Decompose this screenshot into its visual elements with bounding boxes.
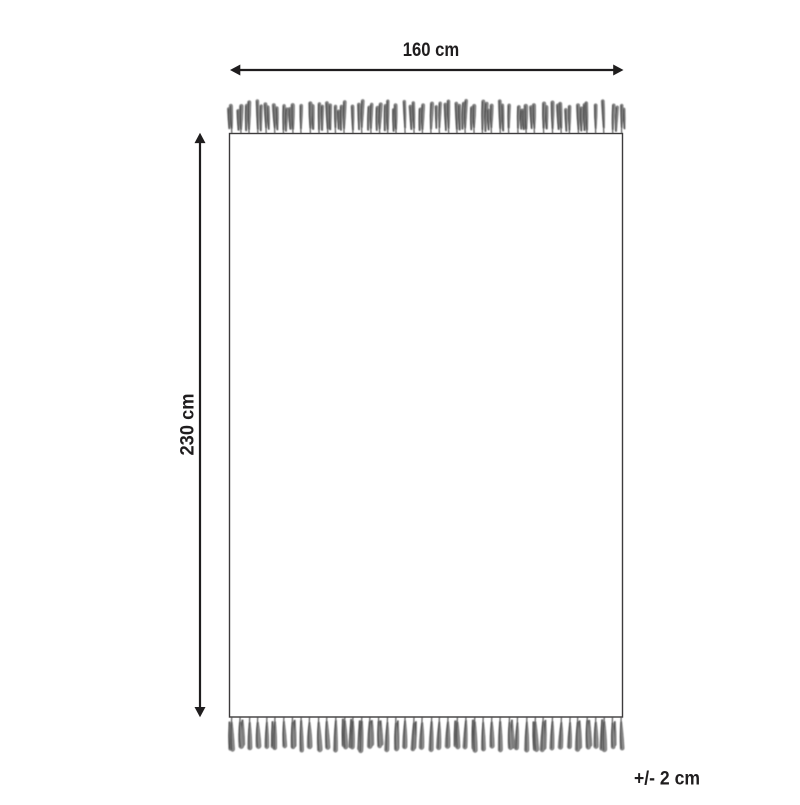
svg-text:230 cm: 230 cm (177, 394, 199, 456)
svg-text:+/- 2 cm: +/- 2 cm (634, 768, 700, 790)
svg-text:160 cm: 160 cm (403, 39, 460, 61)
